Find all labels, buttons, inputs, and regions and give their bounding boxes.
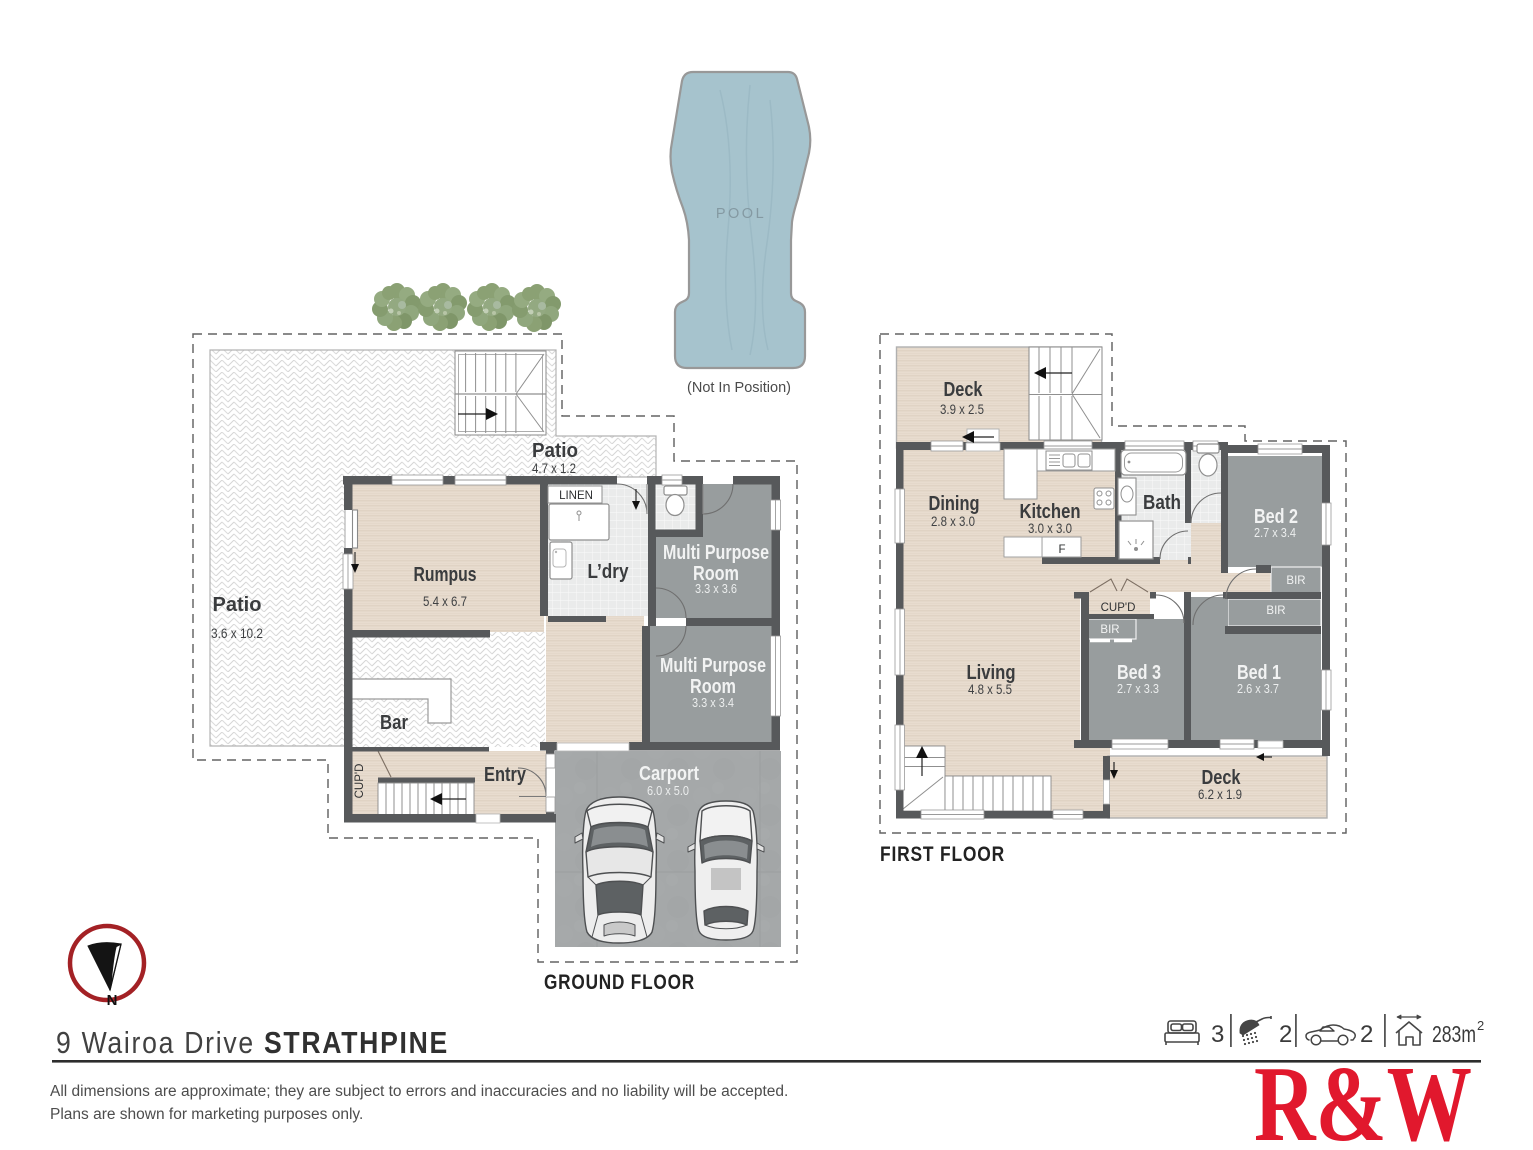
svg-text:Kitchen: Kitchen <box>1020 501 1081 523</box>
svg-text:POOL: POOL <box>716 206 766 222</box>
svg-text:BIR: BIR <box>1286 575 1305 587</box>
svg-text:2.8 x 3.0: 2.8 x 3.0 <box>931 514 975 529</box>
svg-text:N: N <box>107 992 118 1009</box>
svg-text:2: 2 <box>1360 1021 1373 1048</box>
svg-text:GROUND FLOOR: GROUND FLOOR <box>544 970 695 994</box>
svg-text:3.9 x 2.5: 3.9 x 2.5 <box>940 402 984 417</box>
svg-text:Deck: Deck <box>944 379 984 401</box>
svg-text:FIRST FLOOR: FIRST FLOOR <box>880 842 1005 866</box>
svg-text:2.7 x 3.4: 2.7 x 3.4 <box>1254 525 1296 540</box>
svg-text:(Not In Position): (Not In Position) <box>687 380 791 396</box>
svg-text:All dimensions are approximate: All dimensions are approximate; they are… <box>50 1083 788 1100</box>
svg-text:6.2 x 1.9: 6.2 x 1.9 <box>1198 787 1242 802</box>
svg-text:Bath: Bath <box>1143 492 1181 514</box>
svg-text:4.8 x 5.5: 4.8 x 5.5 <box>968 682 1012 697</box>
svg-text:9 Wairoa Drive STRATHPINE: 9 Wairoa Drive STRATHPINE <box>56 1025 449 1060</box>
svg-text:F: F <box>1058 544 1065 556</box>
svg-text:Living: Living <box>967 662 1016 684</box>
svg-text:BIR: BIR <box>1266 605 1285 617</box>
svg-text:L’dry: L’dry <box>588 561 630 583</box>
svg-text:CUP'D: CUP'D <box>1101 602 1136 614</box>
svg-text:Patio: Patio <box>532 440 578 462</box>
svg-text:2.6 x 3.7: 2.6 x 3.7 <box>1237 681 1279 696</box>
svg-text:3: 3 <box>1211 1021 1224 1048</box>
svg-text:3.3 x 3.6: 3.3 x 3.6 <box>695 581 737 596</box>
svg-text:4.7 x 1.2: 4.7 x 1.2 <box>532 461 576 476</box>
svg-text:283m: 283m <box>1432 1021 1476 1047</box>
svg-text:R&W: R&W <box>1254 1045 1472 1150</box>
svg-text:Rumpus: Rumpus <box>414 564 477 586</box>
svg-text:LINEN: LINEN <box>559 490 593 502</box>
svg-text:6.0 x 5.0: 6.0 x 5.0 <box>647 783 689 798</box>
svg-text:3.6 x 10.2: 3.6 x 10.2 <box>211 626 263 641</box>
svg-text:2: 2 <box>1477 1018 1484 1033</box>
svg-text:Multi Purpose: Multi Purpose <box>663 542 769 564</box>
svg-text:Entry: Entry <box>484 764 527 786</box>
svg-text:Deck: Deck <box>1202 767 1242 789</box>
svg-text:5.4 x 6.7: 5.4 x 6.7 <box>423 594 467 609</box>
svg-text:Multi Purpose: Multi Purpose <box>660 655 766 677</box>
svg-text:3.0 x 3.0: 3.0 x 3.0 <box>1028 521 1072 536</box>
svg-text:Carport: Carport <box>639 763 699 785</box>
svg-text:Patio: Patio <box>213 594 262 616</box>
svg-text:2.7 x 3.3: 2.7 x 3.3 <box>1117 681 1159 696</box>
svg-text:Plans are shown for marketing: Plans are shown for marketing purposes o… <box>50 1106 363 1123</box>
svg-text:CUP'D: CUP'D <box>354 764 366 799</box>
svg-text:2: 2 <box>1279 1021 1292 1048</box>
svg-text:3.3 x 3.4: 3.3 x 3.4 <box>692 695 734 710</box>
svg-text:Dining: Dining <box>929 493 980 515</box>
svg-text:Bar: Bar <box>380 712 408 734</box>
svg-text:BIR: BIR <box>1100 624 1119 636</box>
